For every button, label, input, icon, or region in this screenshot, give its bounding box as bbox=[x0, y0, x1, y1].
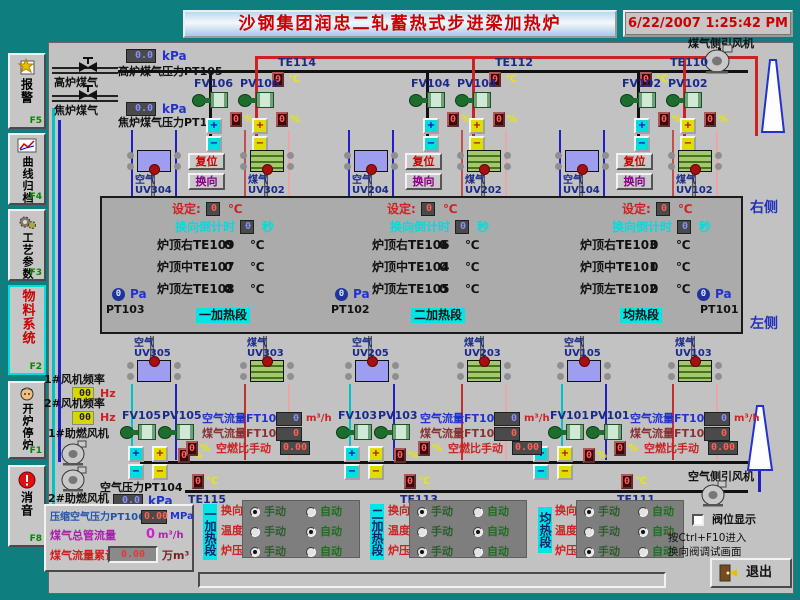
auto-radio[interactable] bbox=[473, 507, 483, 517]
manual-radio[interactable] bbox=[250, 507, 260, 517]
unit-label: ℃ bbox=[250, 239, 265, 253]
auto-radio[interactable] bbox=[306, 547, 316, 557]
unit-label: 秒 bbox=[477, 221, 489, 235]
pipe-seg bbox=[672, 130, 674, 196]
reverse-button[interactable]: 换向 bbox=[405, 173, 442, 190]
control-row-label: 温度 bbox=[555, 525, 577, 538]
uv-tag: UV302 bbox=[248, 185, 285, 197]
sidebar-button-trend-archive[interactable]: 曲线归档 F4 bbox=[8, 133, 46, 205]
control-valve-fv[interactable] bbox=[409, 89, 445, 111]
setpoint-display: 0 bbox=[421, 202, 435, 216]
ratio-display: 0.00 bbox=[708, 441, 738, 455]
te-tag: TE114 bbox=[278, 57, 316, 70]
sidebar-button-furnace-startstop[interactable]: 开炉停炉 F1 bbox=[8, 381, 46, 459]
roof-temp-value: 0 bbox=[224, 239, 232, 253]
roof-temp-label: 炉顶左TE105 bbox=[372, 283, 449, 297]
unit-label: kPa bbox=[162, 103, 187, 117]
unit-label: 秒 bbox=[699, 221, 711, 235]
unit-label: ℃ bbox=[465, 239, 480, 253]
status-strip bbox=[198, 572, 666, 588]
control-row-label: 炉压 bbox=[221, 545, 243, 558]
operator-face-icon bbox=[18, 386, 36, 401]
control-valve-pv[interactable] bbox=[586, 421, 622, 443]
unit-label: ℃ bbox=[206, 476, 218, 488]
air-burner-box bbox=[137, 360, 171, 382]
auto-label: 自动 bbox=[487, 546, 509, 559]
page-title: 沙钢集团润忠二轧蓄热式步进梁加热炉 bbox=[183, 10, 617, 38]
unit-label: ℃ bbox=[250, 283, 265, 297]
reverse-button[interactable]: 换向 bbox=[616, 173, 653, 190]
air-burner-box bbox=[354, 150, 388, 172]
reset-button[interactable]: 复位 bbox=[188, 153, 225, 170]
uv-tag: UV202 bbox=[465, 185, 502, 197]
decrease-button[interactable]: − bbox=[344, 464, 360, 480]
unit-label: 秒 bbox=[262, 221, 274, 235]
uv-tag: UV204 bbox=[352, 185, 389, 197]
unit-label: % bbox=[290, 114, 300, 126]
chimney-top bbox=[758, 58, 788, 134]
control-row-label: 换向 bbox=[555, 505, 577, 518]
gas-burner-box bbox=[467, 360, 501, 382]
increase-button[interactable]: + bbox=[152, 446, 168, 462]
pressure-led: 0 bbox=[697, 288, 710, 301]
control-valve-pv[interactable] bbox=[666, 89, 702, 111]
trend-curve-icon bbox=[17, 138, 37, 154]
pressure-tag: PT102 bbox=[331, 304, 370, 317]
setpoint-label: 设定: bbox=[387, 203, 416, 217]
roof-temp-value: 0 bbox=[650, 261, 658, 275]
manual-radio[interactable] bbox=[584, 547, 594, 557]
gas-flow-label: 煤气流量FT106 bbox=[202, 428, 284, 441]
sidebar-label: 开炉停炉 bbox=[19, 403, 35, 451]
roof-temp-label: 炉顶右TE109 bbox=[157, 239, 234, 253]
hint-line2: 换向阀调试画面 bbox=[668, 546, 742, 558]
burner-port bbox=[367, 356, 378, 367]
reset-button[interactable]: 复位 bbox=[616, 153, 653, 170]
valve-setpoint-buttons: +− bbox=[206, 118, 222, 152]
auto-radio[interactable] bbox=[473, 547, 483, 557]
unit-label: m³/h bbox=[306, 413, 332, 425]
countdown-display: 0 bbox=[677, 220, 691, 234]
valve-position-indicator: 0 bbox=[583, 448, 595, 463]
comb-fan2-icon bbox=[60, 466, 90, 492]
exit-label: 退出 bbox=[746, 566, 772, 581]
countdown-label: 换向倒计时 bbox=[175, 221, 235, 235]
auto-radio[interactable] bbox=[638, 527, 648, 537]
sidebar-button-process-params[interactable]: 工艺参数 F3 bbox=[8, 209, 46, 281]
roof-temp-label: 炉顶右TE106 bbox=[372, 239, 449, 253]
burner-port bbox=[479, 356, 490, 367]
valve-position-indicator: 0 bbox=[493, 112, 505, 127]
reset-button[interactable]: 复位 bbox=[405, 153, 442, 170]
unit-label: ℃ bbox=[676, 261, 691, 275]
increase-button[interactable]: + bbox=[423, 118, 439, 134]
burner-port bbox=[479, 164, 490, 175]
manual-label: 手动 bbox=[431, 526, 453, 539]
manual-radio[interactable] bbox=[584, 507, 594, 517]
burner-port bbox=[366, 164, 377, 175]
section-name-badge: 均热段 bbox=[620, 308, 662, 323]
unit-label: ℃ bbox=[288, 74, 300, 86]
auto-radio[interactable] bbox=[638, 547, 648, 557]
alarm-report-icon bbox=[17, 58, 37, 76]
page-title-text: 沙钢集团润忠二轧蓄热式步进梁加热炉 bbox=[239, 14, 562, 34]
ratio-indicator: 0 bbox=[186, 441, 198, 456]
air-flow-label: 空气流量FT103 bbox=[420, 413, 502, 426]
valve-setpoint-buttons: +− bbox=[252, 118, 268, 152]
mute-exclaim-icon bbox=[18, 471, 36, 489]
right-side-label: 右侧 bbox=[750, 200, 778, 216]
increase-button[interactable]: + bbox=[252, 118, 268, 134]
burner-port bbox=[262, 164, 273, 175]
gas-flow-display: 0 bbox=[704, 427, 730, 441]
burner-port bbox=[690, 356, 701, 367]
gas-burner-box bbox=[250, 360, 284, 382]
valve-position-indicator: 0 bbox=[704, 112, 716, 127]
control-valve-pv[interactable] bbox=[374, 421, 410, 443]
flue-temp-indicator: 0 bbox=[621, 474, 633, 489]
unit-label: m³/h bbox=[158, 530, 184, 542]
valve-setpoint-buttons: +− bbox=[344, 446, 360, 480]
valve-setpoint-buttons: +− bbox=[152, 446, 168, 480]
unit-label: ℃ bbox=[676, 239, 691, 253]
valve-display-label: 阀位显示 bbox=[712, 514, 756, 527]
manual-valve-icon[interactable] bbox=[78, 56, 98, 73]
pipe-seg bbox=[505, 130, 507, 196]
manual-radio[interactable] bbox=[250, 527, 260, 537]
pipe-left-blue-riser bbox=[58, 120, 61, 462]
unit-label: % bbox=[408, 450, 418, 462]
control-section-name: 二加热段 bbox=[370, 504, 384, 560]
roof-temp-label: 炉顶左TE108 bbox=[157, 283, 234, 297]
air-pressure-label: 空气压力PT104 bbox=[100, 482, 183, 495]
burner-port bbox=[579, 356, 590, 367]
ratio-display: 0.00 bbox=[280, 441, 310, 455]
sidebar-button-mute[interactable]: 消音 F8 bbox=[8, 465, 46, 547]
countdown-label: 换向倒计时 bbox=[612, 221, 672, 235]
gas-burner-box bbox=[678, 150, 712, 172]
manual-label: 手动 bbox=[598, 506, 620, 519]
fan2-freq-label: 2#风机频率 bbox=[44, 398, 105, 411]
sidebar-label: 消音 bbox=[19, 491, 36, 517]
air-flow-label: 空气流量FT105 bbox=[202, 413, 284, 426]
control-section-name: 一加热段 bbox=[203, 504, 217, 560]
pressure-tag: PT101 bbox=[700, 304, 739, 317]
pipe-seg bbox=[175, 130, 177, 196]
decrease-button[interactable]: − bbox=[206, 136, 222, 152]
manual-radio[interactable] bbox=[250, 547, 260, 557]
air-flow-display: 0 bbox=[494, 412, 520, 426]
unit-label: Hz bbox=[100, 412, 116, 425]
gas-burner-box bbox=[467, 150, 501, 172]
decrease-button[interactable]: − bbox=[634, 136, 650, 152]
air-flow-label: 空气流量FT101 bbox=[630, 413, 712, 426]
control-row-label: 换向 bbox=[221, 505, 243, 518]
burner-port bbox=[690, 164, 701, 175]
process-gears-icon bbox=[17, 214, 37, 230]
pipe-seg bbox=[716, 130, 718, 196]
burner-port bbox=[149, 356, 160, 367]
air-side-fan-icon bbox=[700, 480, 730, 507]
unit-label: Pa bbox=[715, 288, 732, 302]
control-valve-pv[interactable] bbox=[158, 421, 194, 443]
unit-label: % bbox=[200, 443, 210, 455]
fkey-label: F8 bbox=[30, 534, 42, 544]
pipe-seg bbox=[131, 130, 133, 196]
section-name-badge: 一加热段 bbox=[196, 308, 250, 323]
control-row-label: 温度 bbox=[388, 525, 410, 538]
unit-label: ℃ bbox=[676, 283, 691, 297]
burner-port bbox=[577, 164, 588, 175]
valve-position-indicator: 0 bbox=[276, 112, 288, 127]
valve-position-indicator: 0 bbox=[447, 112, 459, 127]
unit-label: m³/h bbox=[524, 413, 550, 425]
te-tag: TE112 bbox=[495, 57, 533, 70]
pipe-left-cyan-riser bbox=[52, 108, 55, 510]
pressure-led: 0 bbox=[112, 288, 125, 301]
countdown-display: 0 bbox=[240, 220, 254, 234]
unit-label: Pa bbox=[353, 288, 370, 302]
scada-screen: 沙钢集团润忠二轧蓄热式步进梁加热炉 6/22/2007 1:25:42 PM 报… bbox=[0, 0, 800, 600]
burner-port bbox=[262, 356, 273, 367]
manual-radio[interactable] bbox=[417, 527, 427, 537]
bfg-pressure-display: 0.0 bbox=[126, 49, 156, 63]
section-name-badge: 二加热段 bbox=[411, 308, 465, 323]
control-valve-fv[interactable] bbox=[336, 421, 372, 443]
roof-temp-value: 0 bbox=[439, 261, 447, 275]
pipe-seg bbox=[244, 130, 246, 196]
sidebar-button-material-system[interactable]: 物料系统 F2 bbox=[8, 285, 46, 375]
control-valve-fv[interactable] bbox=[192, 89, 228, 111]
valve-position-indicator: 0 bbox=[658, 112, 670, 127]
ratio-label: 空燃比手动 bbox=[216, 443, 271, 456]
gas-burner-box bbox=[250, 150, 284, 172]
hint-line1: 按Ctrl+F10进入 bbox=[668, 532, 746, 544]
auto-radio[interactable] bbox=[638, 507, 648, 517]
manual-label: 手动 bbox=[431, 546, 453, 559]
fkey-label: F2 bbox=[30, 362, 42, 372]
decrease-button[interactable]: − bbox=[152, 464, 168, 480]
unit-label: % bbox=[507, 114, 517, 126]
pipe-seg bbox=[559, 130, 561, 196]
ratio-indicator: 0 bbox=[418, 441, 430, 456]
manual-radio[interactable] bbox=[584, 527, 594, 537]
manual-label: 手动 bbox=[598, 546, 620, 559]
auto-label: 自动 bbox=[320, 526, 342, 539]
unit-label: ℃ bbox=[678, 203, 693, 217]
unit-label: kPa bbox=[162, 50, 187, 64]
decrease-button[interactable]: − bbox=[533, 464, 549, 480]
gas-burner-box bbox=[678, 360, 712, 382]
control-valve-fv[interactable] bbox=[120, 421, 156, 443]
ratio-display: 0.00 bbox=[512, 441, 542, 455]
increase-button[interactable]: + bbox=[634, 118, 650, 134]
pipe-seg bbox=[348, 130, 350, 196]
left-side-label: 左侧 bbox=[750, 316, 778, 332]
control-row-label: 换向 bbox=[388, 505, 410, 518]
increase-button[interactable]: + bbox=[368, 446, 384, 462]
auto-label: 自动 bbox=[320, 506, 342, 519]
unit-label: ℃ bbox=[443, 203, 458, 217]
control-valve-pv[interactable] bbox=[238, 89, 274, 111]
roof-temp-value: 0 bbox=[650, 283, 658, 297]
air-flow-display: 0 bbox=[276, 412, 302, 426]
decrease-button[interactable]: − bbox=[368, 464, 384, 480]
unit-label: % bbox=[432, 443, 442, 455]
flue-temp-indicator: 0 bbox=[404, 474, 416, 489]
valve-setpoint-buttons: +− bbox=[128, 446, 144, 480]
fan1-freq-label: 1#风机频率 bbox=[44, 374, 105, 387]
unit-label: MPa bbox=[170, 511, 194, 523]
increase-button[interactable]: + bbox=[680, 118, 696, 134]
gas-total-label: 煤气流量累计 bbox=[50, 550, 116, 563]
increase-button[interactable]: + bbox=[344, 446, 360, 462]
comb-fan1-label: 1#助燃风机 bbox=[48, 428, 109, 441]
setpoint-label: 设定: bbox=[622, 203, 651, 217]
setpoint-label: 设定: bbox=[172, 203, 201, 217]
fan2-freq-display: 00 bbox=[72, 411, 94, 425]
unit-label: % bbox=[597, 450, 607, 462]
auto-label: 自动 bbox=[487, 506, 509, 519]
auto-label: 自动 bbox=[320, 546, 342, 559]
manual-radio[interactable] bbox=[417, 547, 427, 557]
unit-label: Pa bbox=[130, 288, 147, 302]
decrease-button[interactable]: − bbox=[423, 136, 439, 152]
control-valve-fv[interactable] bbox=[548, 421, 584, 443]
unit-label: ℃ bbox=[250, 261, 265, 275]
auto-radio[interactable] bbox=[306, 527, 316, 537]
valve-setpoint-buttons: +− bbox=[423, 118, 439, 152]
roof-temp-value: 0 bbox=[224, 283, 232, 297]
valve-setpoint-buttons: +− bbox=[634, 118, 650, 152]
comp-air-label: 压缩空气压力PT106 bbox=[50, 512, 145, 524]
control-valve-pv[interactable] bbox=[455, 89, 491, 111]
gas-total-display: 0.00 bbox=[108, 546, 158, 563]
burner-port bbox=[149, 164, 160, 175]
increase-button[interactable]: + bbox=[206, 118, 222, 134]
manual-label: 手动 bbox=[264, 526, 286, 539]
increase-button[interactable]: + bbox=[557, 446, 573, 462]
control-row-label: 炉压 bbox=[555, 545, 577, 558]
uv-tag: UV304 bbox=[135, 185, 172, 197]
gas-main-flow-value: 0 bbox=[146, 528, 155, 543]
roof-temp-value: 0 bbox=[439, 239, 447, 253]
uv-tag: UV102 bbox=[676, 185, 713, 197]
manual-label: 手动 bbox=[598, 526, 620, 539]
pipe-air-main-bottom bbox=[140, 461, 748, 464]
pressure-tag: PT103 bbox=[106, 304, 145, 317]
reverse-button[interactable]: 换向 bbox=[188, 173, 225, 190]
unit-label: ℃ bbox=[418, 476, 430, 488]
setpoint-display: 0 bbox=[656, 202, 670, 216]
roof-temp-label: 炉顶右TE103 bbox=[580, 239, 657, 253]
auto-radio[interactable] bbox=[473, 527, 483, 537]
manual-radio[interactable] bbox=[417, 507, 427, 517]
gas-flow-label: 煤气流量FT104 bbox=[420, 428, 502, 441]
ratio-indicator: 0 bbox=[614, 441, 626, 456]
increase-button[interactable]: + bbox=[469, 118, 485, 134]
valve-position-indicator: 0 bbox=[230, 112, 242, 127]
air-burner-box bbox=[565, 150, 599, 172]
air-burner-box bbox=[567, 360, 601, 382]
ratio-label: 空燃比手动 bbox=[448, 443, 503, 456]
unit-label: ℃ bbox=[465, 261, 480, 275]
pipe-seg bbox=[603, 130, 605, 196]
datetime-display: 6/22/2007 1:25:42 PM bbox=[623, 10, 793, 37]
roof-temp-value: 0 bbox=[439, 283, 447, 297]
exit-button[interactable]: 退出 bbox=[710, 558, 792, 588]
fkey-label: F5 bbox=[30, 116, 42, 126]
fkey-label: F3 bbox=[30, 268, 42, 278]
pressure-led: 0 bbox=[335, 288, 348, 301]
cog-pipe-label: 焦炉煤气 bbox=[54, 105, 98, 118]
fkey-label: F4 bbox=[30, 192, 42, 202]
manual-valve-icon[interactable] bbox=[78, 84, 98, 101]
flue-temp-indicator: 0 bbox=[192, 474, 204, 489]
gas-flow-display: 0 bbox=[276, 427, 302, 441]
cog-pressure-display: 0.0 bbox=[126, 102, 156, 116]
air-burner-box bbox=[137, 150, 171, 172]
comp-air-display: 0.00 bbox=[141, 510, 167, 524]
roof-temp-value: 0 bbox=[650, 239, 658, 253]
gas-main-flow-label: 煤气总管流量 bbox=[50, 530, 116, 543]
pipe-seg bbox=[288, 130, 290, 196]
manual-label: 手动 bbox=[264, 506, 286, 519]
countdown-label: 换向倒计时 bbox=[390, 221, 450, 235]
valve-setpoint-buttons: +− bbox=[469, 118, 485, 152]
auto-label: 自动 bbox=[652, 506, 674, 519]
decrease-button[interactable]: − bbox=[128, 464, 144, 480]
sidebar-button-alarm[interactable]: 报警 F5 bbox=[8, 53, 46, 129]
setpoint-display: 0 bbox=[206, 202, 220, 216]
unit-label: m³/h bbox=[734, 413, 760, 425]
exit-door-icon bbox=[718, 564, 738, 582]
control-row-label: 温度 bbox=[221, 525, 243, 538]
control-section-name: 均热段 bbox=[538, 507, 552, 553]
unit-label: ℃ bbox=[635, 476, 647, 488]
comb-fan1-icon bbox=[60, 440, 90, 466]
valve-setpoint-buttons: +− bbox=[368, 446, 384, 480]
unit-label: % bbox=[628, 443, 638, 455]
pipe-flue-main bbox=[185, 490, 748, 493]
pipe-seg bbox=[392, 130, 394, 196]
air-burner-box bbox=[355, 360, 389, 382]
increase-button[interactable]: + bbox=[128, 446, 144, 462]
pipe-seg bbox=[461, 130, 463, 196]
manual-label: 手动 bbox=[431, 506, 453, 519]
roof-temp-label: 炉顶中TE104 bbox=[372, 261, 449, 275]
decrease-button[interactable]: − bbox=[557, 464, 573, 480]
valve-setpoint-buttons: +− bbox=[557, 446, 573, 480]
sidebar-label: 报警 bbox=[19, 78, 36, 104]
unit-label: ℃ bbox=[228, 203, 243, 217]
unit-label: % bbox=[718, 114, 728, 126]
auto-label: 自动 bbox=[487, 526, 509, 539]
control-valve-fv[interactable] bbox=[620, 89, 656, 111]
air-flow-display: 0 bbox=[704, 412, 730, 426]
valve-setpoint-buttons: +− bbox=[680, 118, 696, 152]
countdown-display: 0 bbox=[455, 220, 469, 234]
sidebar-label: 物料系统 bbox=[18, 289, 37, 345]
auto-radio[interactable] bbox=[306, 507, 316, 517]
valve-display-checkbox[interactable] bbox=[692, 514, 704, 526]
fkey-label: F1 bbox=[30, 446, 42, 456]
ratio-label: 空燃比手动 bbox=[644, 443, 699, 456]
unit-label: ℃ bbox=[505, 74, 517, 86]
te-tag: TE110 bbox=[670, 57, 708, 70]
roof-temp-label: 炉顶中TE101 bbox=[580, 261, 657, 275]
uv-tag: UV104 bbox=[563, 185, 600, 197]
